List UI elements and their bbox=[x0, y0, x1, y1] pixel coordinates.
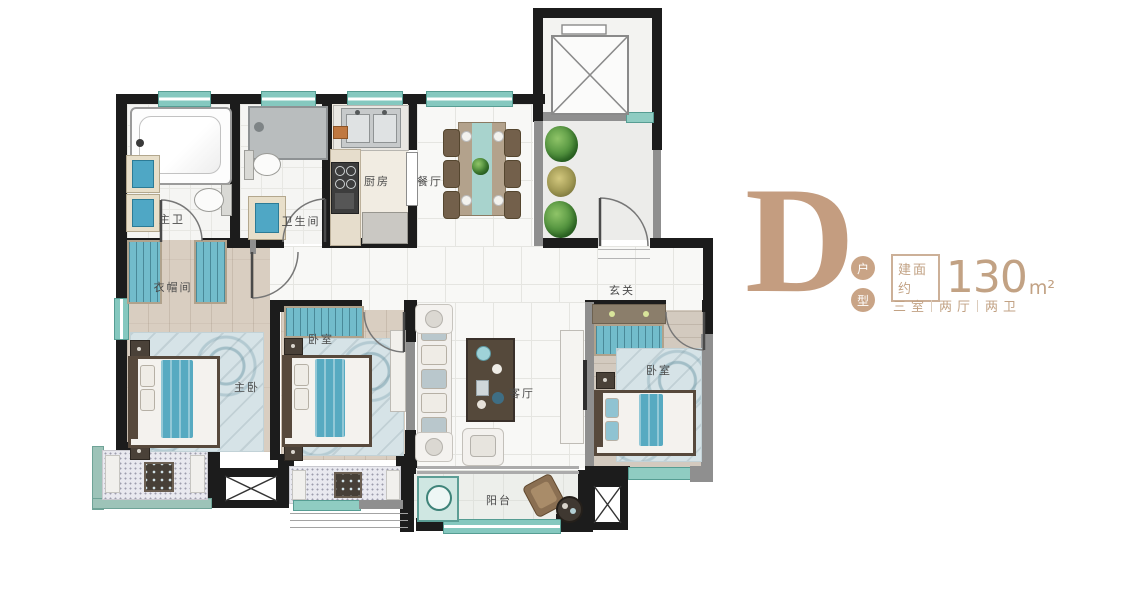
room-label-cloakroom: 衣帽间 bbox=[154, 279, 193, 295]
floorplan-image: 主卫 卫生间 厨房 餐厅 玄关 衣帽间 主卧 卧室 客厅 卧室 阳台 D 户 型… bbox=[0, 0, 1125, 598]
elevator-door bbox=[562, 25, 606, 34]
room-label-foyer: 玄关 bbox=[609, 282, 635, 298]
room-label-master-bedroom: 主卧 bbox=[234, 379, 260, 395]
room-label-bedroom-middle: 卧室 bbox=[308, 331, 334, 347]
room-label-master-bathroom: 主卫 bbox=[159, 211, 185, 227]
door-arcs bbox=[161, 198, 704, 352]
plan-linework-overlay bbox=[0, 0, 1125, 598]
room-label-bathroom: 卫生间 bbox=[282, 213, 321, 229]
room-label-dining: 餐厅 bbox=[417, 173, 443, 189]
room-label-bedroom-east: 卧室 bbox=[646, 362, 672, 378]
room-label-kitchen: 厨房 bbox=[364, 173, 390, 189]
room-label-balcony: 阳台 bbox=[486, 492, 512, 508]
room-label-living: 客厅 bbox=[509, 385, 535, 401]
